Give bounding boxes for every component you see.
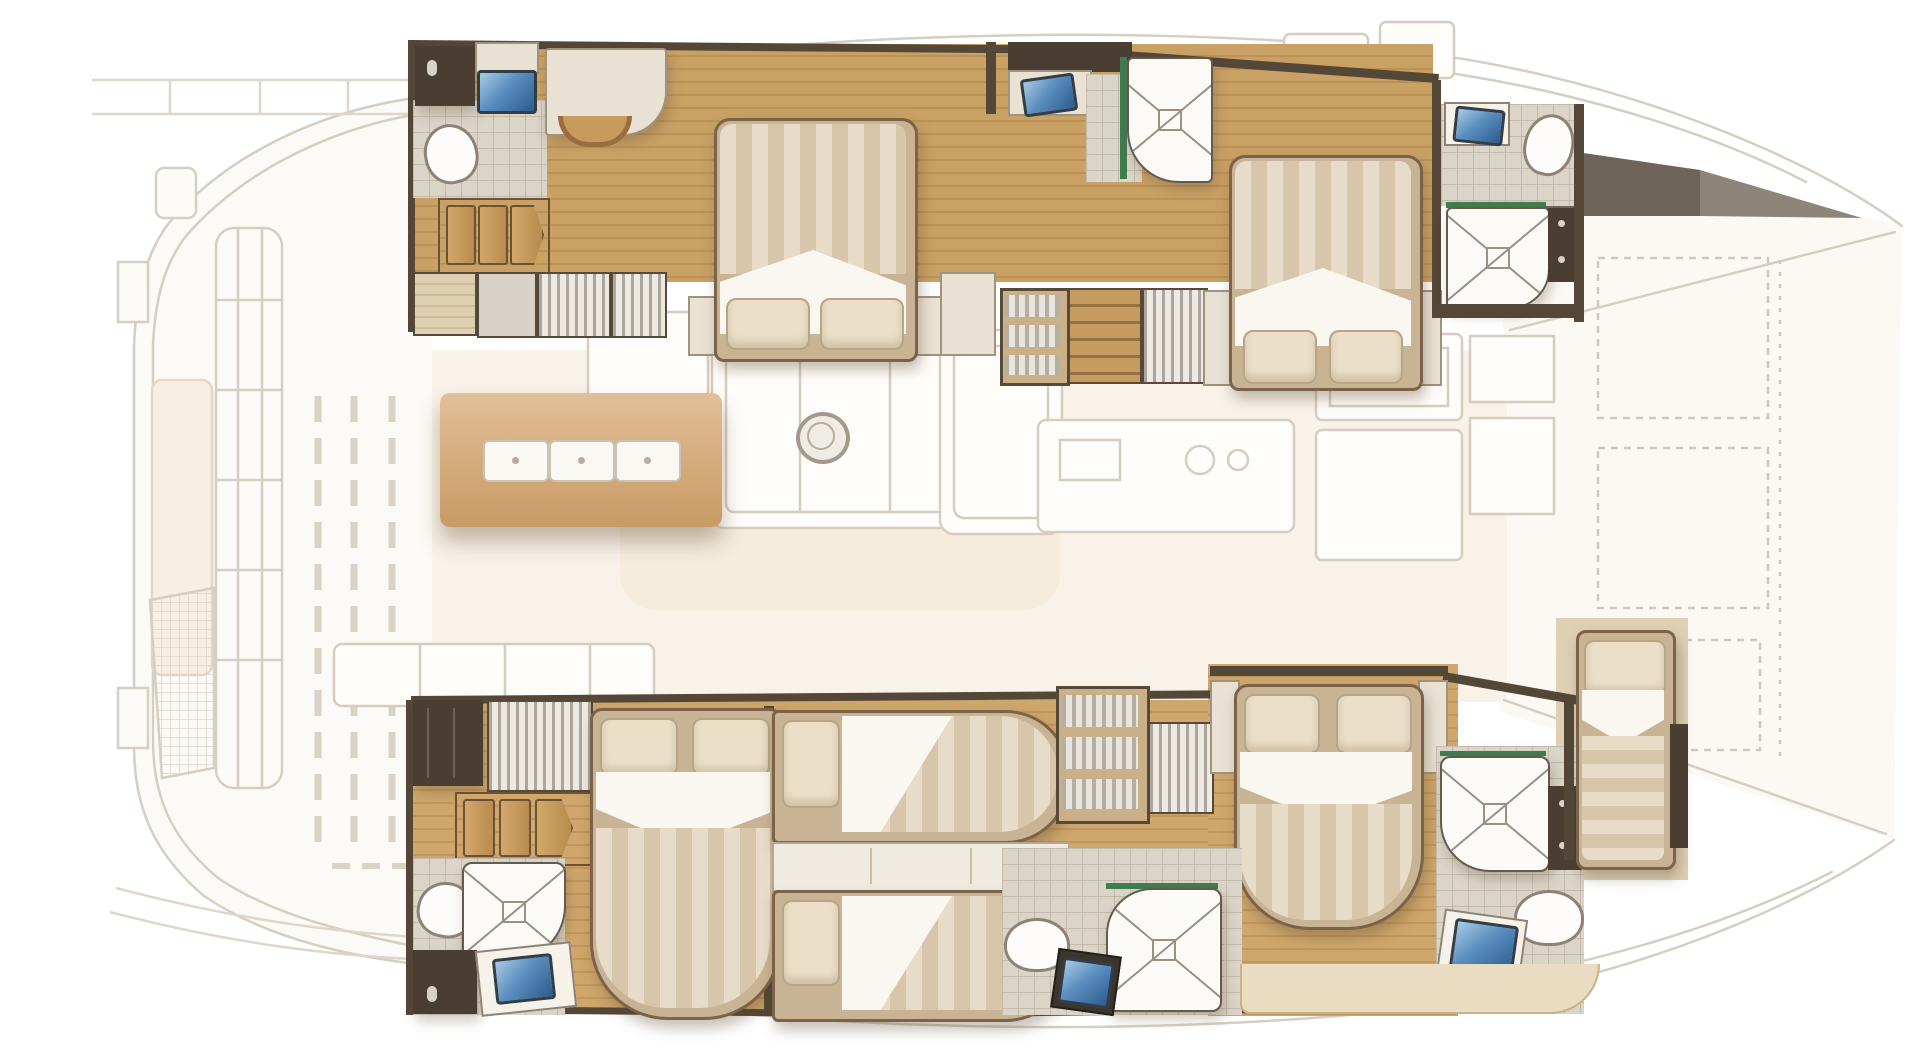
- place-setting: [615, 440, 681, 482]
- forepeak-rail: [1564, 700, 1574, 860]
- port-mid-washbasin: [1020, 72, 1079, 117]
- bed-pillow: [1329, 330, 1403, 384]
- berth-pillow: [1584, 640, 1666, 696]
- shower: [1446, 207, 1550, 309]
- wardrobe-cabinet: [413, 272, 477, 336]
- berth-pillow: [782, 900, 840, 986]
- bed-mattress: [596, 828, 770, 1008]
- catamaran-floor-plan: [0, 0, 1920, 1061]
- stbd-aft-wc-cabinet: [413, 950, 477, 1014]
- aft-deck-details: [92, 80, 432, 960]
- aft-deck-lashing-lines: [318, 396, 392, 852]
- bed-pillow: [820, 298, 904, 350]
- port-fwd-washbasin: [1452, 105, 1505, 146]
- shower-glass-edge: [1120, 57, 1127, 179]
- stbd-mid-washbasin: [1057, 957, 1115, 1010]
- stbd-hull-aft-bulkhead: [406, 700, 413, 1015]
- stbd-fwd-cabin-wall: [1210, 666, 1448, 676]
- wardrobe-tall-dark: [413, 700, 483, 786]
- hanging-locker: [487, 700, 593, 792]
- bed-pillow: [600, 718, 678, 776]
- bow-bulkhead-shading-tip: [1700, 170, 1862, 218]
- port-aft-washbasin: [477, 70, 537, 114]
- bed-mattress: [1240, 804, 1412, 920]
- shower: [1127, 57, 1213, 183]
- storage-shelves: [1068, 288, 1142, 384]
- port-fwd-head-aft-wall: [1432, 304, 1582, 318]
- stbd-hull-bow-rim: [1240, 964, 1600, 1014]
- wardrobe-cabinet: [477, 272, 537, 338]
- hanging-locker: [611, 272, 667, 338]
- hanging-locker: [1142, 288, 1208, 384]
- bed-pillow: [1244, 694, 1320, 754]
- port-bow-bulkhead: [1574, 104, 1584, 322]
- port-aft-wc-cabinet: [415, 46, 475, 106]
- bed-pillow: [692, 718, 770, 776]
- bed-pillow: [726, 298, 810, 350]
- place-setting: [483, 440, 549, 482]
- berth-mattress: [1582, 736, 1664, 860]
- bed-pillow: [1336, 694, 1412, 754]
- berth-pillow: [782, 720, 840, 808]
- stbd-aft-washbasin: [492, 953, 556, 1005]
- hanging-locker: [537, 272, 611, 338]
- stbd-companionway-steps: [455, 792, 607, 866]
- wardrobe-cabinet: [940, 272, 996, 356]
- bed-pillow: [1243, 330, 1317, 384]
- hanging-locker: [1148, 722, 1214, 814]
- deck-hatch: [796, 412, 850, 464]
- port-mid-partition: [986, 42, 996, 114]
- aft-deck-fill: [134, 96, 432, 966]
- shelf-unit: [1000, 288, 1070, 386]
- bookshelf: [1056, 686, 1150, 824]
- shower: [1106, 888, 1222, 1012]
- forepeak-locker: [1670, 724, 1688, 848]
- port-mid-head-wall: [1008, 42, 1132, 72]
- place-setting: [549, 440, 615, 482]
- port-companionway-steps: [438, 198, 550, 274]
- port-fwd-head-wall: [1432, 80, 1441, 306]
- shower: [1440, 756, 1550, 872]
